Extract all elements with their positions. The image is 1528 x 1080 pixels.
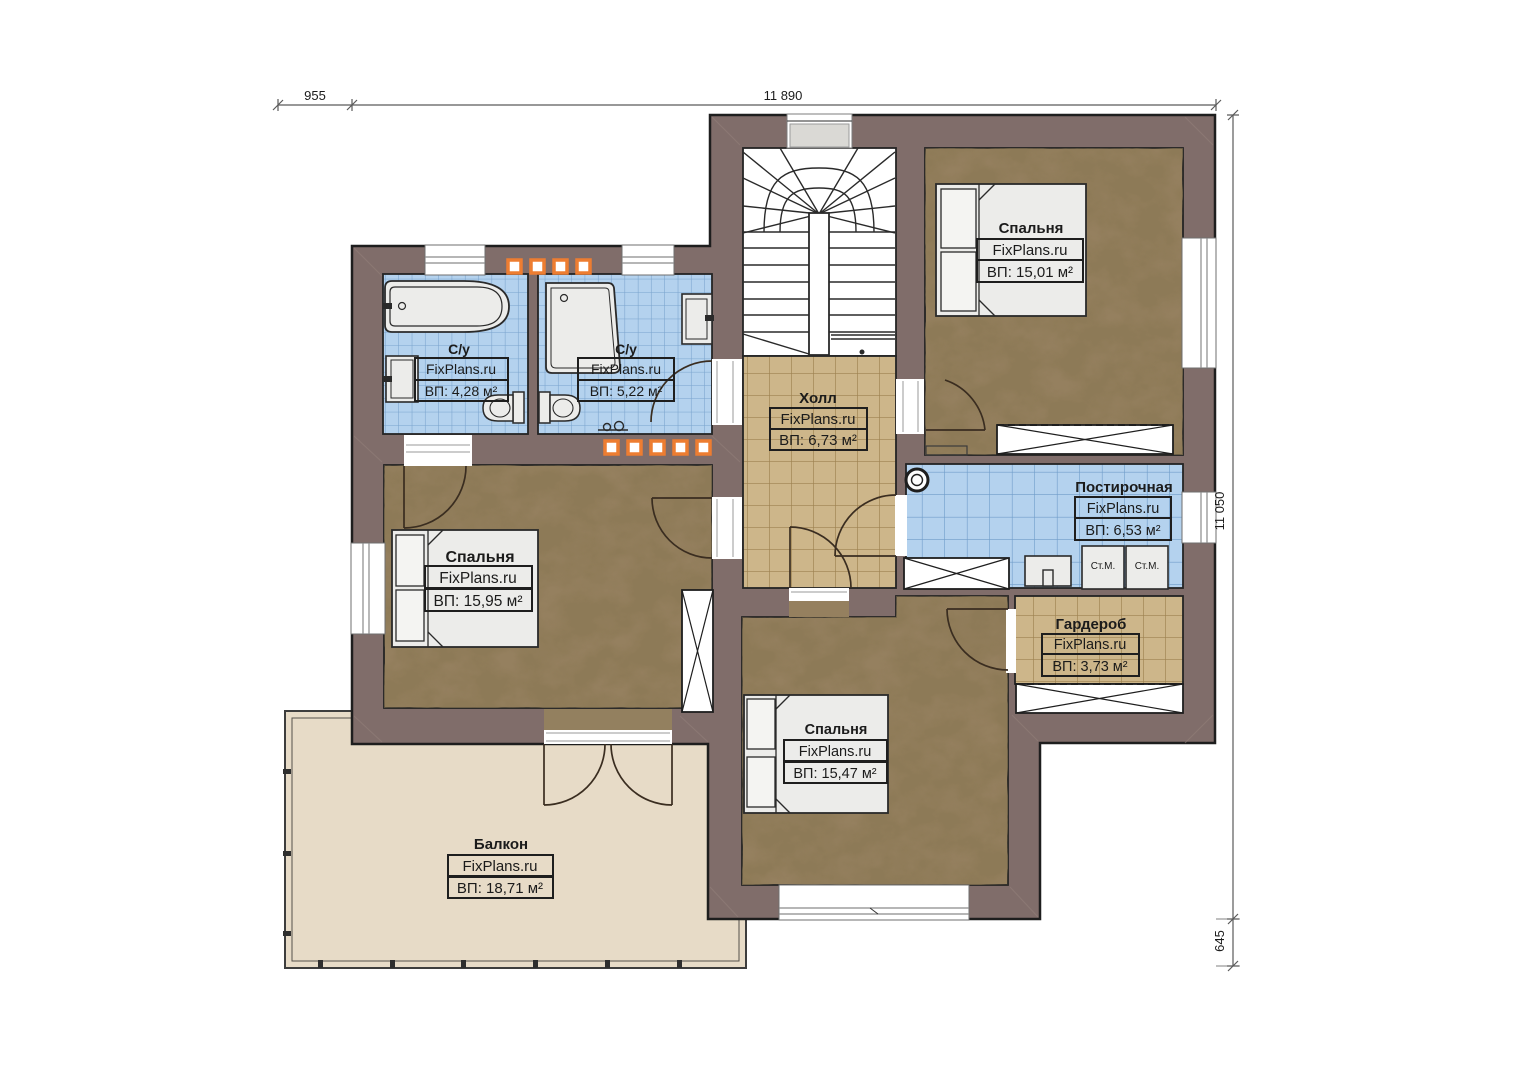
svg-text:FixPlans.ru: FixPlans.ru — [780, 411, 855, 428]
svg-text:FixPlans.ru: FixPlans.ru — [1054, 637, 1127, 653]
svg-text:Балкон: Балкон — [474, 836, 528, 853]
svg-text:ВП: 5,22 м²: ВП: 5,22 м² — [590, 383, 663, 399]
svg-text:ВП: 4,28 м²: ВП: 4,28 м² — [425, 383, 498, 399]
svg-text:FixPlans.ru: FixPlans.ru — [439, 570, 517, 587]
svg-text:ВП: 6,73 м²: ВП: 6,73 м² — [779, 432, 857, 449]
svg-text:FixPlans.ru: FixPlans.ru — [799, 744, 872, 760]
svg-text:С/у: С/у — [448, 341, 470, 357]
svg-text:FixPlans.ru: FixPlans.ru — [462, 858, 537, 875]
svg-text:Спальня: Спальня — [445, 549, 514, 566]
svg-text:FixPlans.ru: FixPlans.ru — [591, 361, 661, 377]
svg-text:FixPlans.ru: FixPlans.ru — [992, 242, 1067, 259]
svg-text:Постирочная: Постирочная — [1075, 479, 1172, 496]
svg-text:955: 955 — [304, 88, 326, 103]
svg-text:ВП: 6,53 м²: ВП: 6,53 м² — [1085, 523, 1160, 539]
svg-text:С/у: С/у — [615, 341, 637, 357]
svg-text:FixPlans.ru: FixPlans.ru — [1087, 501, 1160, 517]
svg-text:11 890: 11 890 — [764, 88, 803, 103]
svg-text:FixPlans.ru: FixPlans.ru — [426, 361, 496, 377]
svg-text:Спальня: Спальня — [805, 722, 868, 738]
svg-text:ВП: 3,73 м²: ВП: 3,73 м² — [1052, 659, 1127, 675]
svg-text:ВП: 15,95 м²: ВП: 15,95 м² — [433, 593, 522, 610]
svg-text:Ст.М.: Ст.М. — [1091, 561, 1116, 572]
svg-text:Холл: Холл — [799, 390, 837, 407]
svg-text:Ст.М.: Ст.М. — [1135, 561, 1160, 572]
svg-text:645: 645 — [1212, 930, 1227, 952]
svg-text:Спальня: Спальня — [999, 220, 1064, 237]
svg-text:ВП: 15,47 м²: ВП: 15,47 м² — [793, 766, 876, 782]
svg-text:Гардероб: Гардероб — [1056, 616, 1127, 633]
svg-text:11 050: 11 050 — [1212, 492, 1227, 531]
svg-text:ВП: 15,01 м²: ВП: 15,01 м² — [987, 264, 1073, 281]
svg-text:ВП: 18,71 м²: ВП: 18,71 м² — [457, 880, 543, 897]
